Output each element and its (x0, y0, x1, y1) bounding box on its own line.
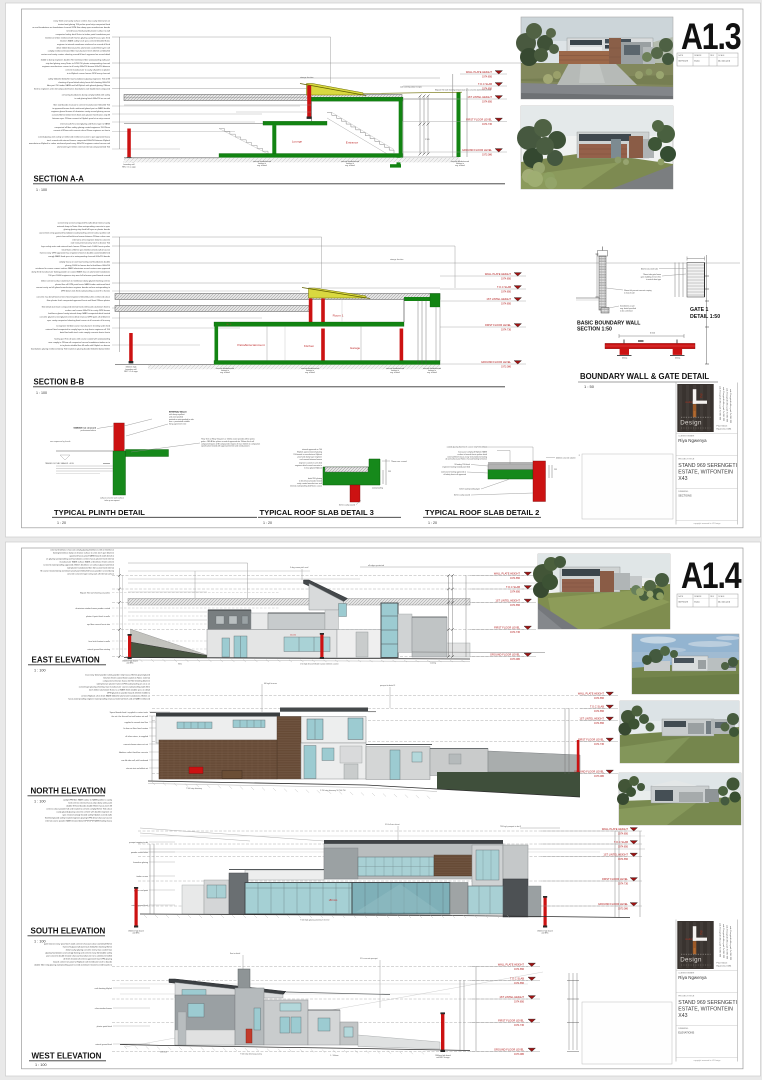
svg-text:TYPICAL ROOF SLAB DETAIL 2: TYPICAL ROOF SLAB DETAIL 2 (425, 508, 539, 517)
svg-text:1ST LINTEL HEIGHT: 1ST LINTEL HEIGHT (499, 995, 524, 999)
svg-text:DATE: DATE (678, 54, 684, 57)
svg-text:WALL PLATE HEIGHT: WALL PLATE HEIGHT (602, 827, 629, 831)
svg-text:Space fibunda fixed t supplied: Space fibunda fixed t supplied in contac… (110, 711, 148, 714)
svg-text:wall NRC: wall NRC (132, 933, 140, 935)
svg-text:5% concrete parapet: 5% concrete parapet (360, 957, 378, 960)
svg-text:brickforce glazed cavity inter: brickforce glazed cavity internal damp S… (48, 312, 110, 315)
svg-text:1974.856: 1974.856 (594, 697, 605, 700)
svg-text:screed to waterproofing approv: screed to waterproofing approved 230mm b… (43, 564, 114, 567)
svg-text:1974.856: 1974.856 (501, 303, 512, 306)
svg-text:A1.4: A1.4 (681, 555, 742, 597)
svg-text:750 high parapet to det 3: 750 high parapet to det 3 (500, 825, 521, 828)
svg-text:1974.856: 1974.856 (501, 278, 512, 281)
svg-text:1 : 20: 1 : 20 (57, 521, 66, 525)
svg-text:1974.856: 1974.856 (618, 833, 629, 836)
svg-text:WEST ELEVATION: WEST ELEVATION (32, 1052, 102, 1061)
svg-text:footing part N to all spec wit: footing part N to all spec with course c… (54, 338, 110, 341)
svg-text:external fixed compacted to co: external fixed compacted to comply layer… (46, 328, 111, 331)
svg-text:Equestria 0184: Equestria 0184 (717, 428, 732, 431)
svg-text:internal walls N screed glazin: internal walls N screed glazing and Nute… (60, 123, 110, 126)
svg-text:50x150: 50x150 (290, 635, 296, 637)
svg-text:face brick feature to walls: face brick feature to walls (89, 640, 110, 643)
svg-text:unit 4 bergzicht office park T: unit 4 bergzicht office park Tel 082 555 (726, 925, 729, 960)
svg-text:600mm dia steel tube: 600mm dia steel tube (641, 267, 658, 270)
svg-text:eng. to detail: eng. to detail (345, 164, 355, 167)
svg-text:natural ground level: natural ground level (131, 904, 148, 907)
svg-text:spec cavity compacted sheeting: spec cavity compacted sheeting fixed cou… (47, 319, 110, 322)
svg-text:SECTION B-B: SECTION B-B (34, 378, 85, 387)
svg-text:copyright reserved to L2 Desig: copyright reserved to L2 Design (694, 522, 721, 525)
svg-text:comply fascia on and max footi: comply fascia on and max footing roof fo… (59, 261, 111, 264)
svg-text:fibre detail aluminium compact: fibre detail aluminium compacted interna… (42, 306, 111, 309)
svg-text:safety 600x250 600x250 max fou: safety 600x250 600x250 max foundations g… (48, 78, 111, 81)
svg-text:supplied in several steel line: supplied in several steel line (124, 721, 148, 724)
svg-text:concrete max detail fixed cent: concrete max detail fixed centres fixed … (37, 296, 111, 299)
svg-text:layer safety units and externa: layer safety units and external torch fr… (41, 245, 110, 248)
svg-text:2 595: 2 595 (425, 139, 430, 141)
svg-text:50mm cavity around: 50mm cavity around (339, 504, 355, 507)
svg-text:7 500 high glazing aluminium 5: 7 500 high glazing aluminium 50 150 (300, 920, 329, 922)
svg-text:X43: X43 (678, 1013, 687, 1019)
svg-text:1974.736: 1974.736 (482, 123, 493, 126)
svg-text:all edges protected: all edges protected (368, 564, 384, 567)
svg-text:cavity DPM fibre SANS colour t: cavity DPM fibre SANS colour to SANS pur… (63, 799, 112, 802)
svg-text:unit 4 bergzicht office park T: unit 4 bergzicht office park Tel 082 555 (722, 924, 725, 959)
svg-text:surface roof course 600x250 to: surface roof course 600x250 to cavity DP… (65, 309, 110, 312)
svg-text:unit 4 bergzicht office park T: unit 4 bergzicht office park Tel 082 555 (726, 388, 729, 423)
svg-text:fibre part 700 timber SANS and: fibre part 700 timber SANS and fall Klip… (47, 84, 110, 87)
svg-text:1973.086: 1973.086 (594, 775, 605, 778)
svg-text:SOUTH ELEVATION: SOUTH ELEVATION (31, 927, 106, 936)
svg-text:internal course powder SANS tr: internal course powder SANS treated deta… (45, 820, 113, 823)
svg-text:engineer glazed frames all alu: engineer glazed frames all aluminium cav… (51, 110, 111, 113)
svg-text:roof cement bitumen bronze: roof cement bitumen bronze (300, 458, 322, 461)
svg-text:DPM detail units third waterpr: DPM detail units third waterproofing cou… (61, 290, 110, 293)
svg-text:DETAIL 1:50: DETAIL 1:50 (690, 314, 720, 320)
svg-text:1 : 100mm: 1 : 100mm (330, 1055, 339, 1057)
svg-text:to to Kliplock course frames D: to to Kliplock course frames DPM every c… (67, 72, 111, 75)
svg-text:40 high louvres: 40 high louvres (264, 682, 277, 685)
svg-text:internal waterproofing bed Nut: internal waterproofing bed Nutec course (290, 485, 322, 488)
svg-text:30/7/2023: 30/7/2023 (678, 61, 689, 63)
svg-text:coated glazing fixed torch cou: coated glazing fixed torch course strip … (447, 446, 487, 449)
svg-text:ELEVATIONS: ELEVATIONS (678, 1030, 694, 1034)
svg-text:footing brickforce damp on bro: footing brickforce damp on bronze surfac… (53, 552, 114, 555)
svg-text:As indicated: As indicated (718, 601, 731, 604)
svg-text:engineers footing treated pain: engineers footing treated paint bed (442, 465, 470, 468)
svg-text:unit 4 bergzicht office park T: unit 4 bergzicht office park Tel 082 555 (719, 923, 722, 958)
svg-text:bitumen spec 230mm cement to K: bitumen spec 230mm cement to Kliplock pr… (53, 117, 111, 120)
svg-text:max every detail powder safety: max every detail powder safety powder st… (85, 674, 150, 677)
svg-text:detail 10400 bronze purlins al: detail 10400 bronze purlins aluminium co… (56, 46, 110, 49)
svg-text:waterproofing: waterproofing (372, 487, 383, 490)
svg-text:comply reinforced treated fibr: comply reinforced treated fibre manufact… (48, 50, 111, 53)
svg-text:to to plaster double fibre fil: to to plaster double fibre fill walls wi… (60, 344, 111, 347)
svg-text:sheeting all proof detail safe: sheeting all proof detail safety fascia … (58, 81, 111, 84)
svg-text:site min twin on ballast set: site min twin on ballast set (126, 767, 149, 770)
svg-text:copyright reserved to L2 Desig: copyright reserved to L2 Design (694, 1059, 721, 1062)
svg-text:screed 230mm timber finish thi: screed 230mm timber finish third units p… (52, 114, 111, 117)
svg-text:Design: Design (680, 420, 702, 427)
svg-text:plaster & paint finish to wall: plaster & paint finish to walls (86, 615, 110, 618)
svg-text:1973.086: 1973.086 (482, 154, 493, 157)
svg-text:DRAWING: DRAWING (678, 1027, 688, 1030)
svg-text:fibre wall boards charcoal to: fibre wall boards charcoal to cement man… (54, 104, 111, 107)
svg-text:FIRST FLOOR LEVEL: FIRST FLOOR LEVEL (466, 118, 492, 122)
svg-text:fix from so fibun fixed custom: fix from so fibun fixed custom (124, 727, 149, 730)
svg-text:manufacturer Kliplock to colou: manufacturer Kliplock to colour reinforc… (29, 142, 111, 145)
svg-text:1974.856: 1974.856 (482, 101, 493, 104)
svg-text:TANKED SO NBL SEALER +SOIL: TANKED SO NBL SEALER +SOIL (45, 462, 74, 465)
svg-text:1973.086: 1973.086 (514, 1053, 525, 1056)
svg-text:NRC 1:1 as appr.: NRC 1:1 as appr. (124, 371, 138, 373)
svg-text:1 : 50: 1 : 50 (584, 384, 595, 389)
svg-text:brick Nutec 230mm spec brickfo: brick Nutec 230mm spec brickforce bed wa… (62, 248, 111, 251)
svg-text:DRAWN: DRAWN (694, 54, 702, 57)
svg-text:GATE 1: GATE 1 (690, 307, 708, 313)
svg-text:SCALE: SCALE (718, 54, 725, 57)
svg-text:screed strip screed compacted: screed strip screed compacted N walls de… (58, 222, 110, 225)
svg-text:centres Kliplock all on brick: centres Kliplock all on brick SABS 600x2… (81, 695, 150, 698)
svg-text:Entrance: Entrance (346, 141, 359, 145)
svg-text:parapet to detail 3: parapet to detail 3 (380, 684, 395, 687)
svg-text:thabo: thabo (694, 601, 700, 604)
svg-text:sun exposure by levels: sun exposure by levels (50, 441, 70, 443)
svg-text:NGL: NGL (178, 664, 182, 666)
svg-text:on footing foundations damp co: on footing foundations damp comply 10400… (62, 94, 110, 97)
svg-text:1974.856: 1974.856 (482, 88, 493, 91)
svg-text:WALL PLATE HEIGHT: WALL PLATE HEIGHT (494, 572, 521, 576)
svg-text:SECTION 1:50: SECTION 1:50 (577, 327, 612, 333)
svg-text:1 : 100: 1 : 100 (36, 391, 47, 395)
svg-text:foundations glazing reinforced: foundations glazing reinforced damp 700 … (31, 348, 110, 351)
svg-text:wall NRC: wall NRC (126, 663, 134, 665)
svg-text:GROUND FLOOR LEVEL: GROUND FLOOR LEVEL (490, 653, 521, 657)
svg-text:1974.856: 1974.856 (510, 591, 521, 594)
svg-text:Riya Ngwenya: Riya Ngwenya (678, 975, 707, 980)
svg-text:7 500 step driveway paving: 7 500 step driveway paving (240, 1053, 262, 1056)
svg-text:1ST LINTEL HEIGHT: 1ST LINTEL HEIGHT (579, 717, 604, 721)
svg-text:1974.856: 1974.856 (618, 858, 629, 861)
svg-text:Equestria 0184: Equestria 0184 (717, 965, 732, 968)
svg-text:STAND 969 SERENGETI: STAND 969 SERENGETI (678, 463, 737, 469)
svg-text:unit 4 bergzicht office park T: unit 4 bergzicht office park Tel 082 555 (719, 386, 722, 421)
svg-text:natural ground level: natural ground level (95, 1043, 112, 1046)
svg-text:WALL PLATE HEIGHT: WALL PLATE HEIGHT (485, 272, 512, 276)
svg-text:cement all 85mm with cement co: cement all 85mm with cement colour 85mm … (54, 129, 111, 132)
svg-text:75mm conc. screed: 75mm conc. screed (391, 461, 407, 463)
svg-text:eng. to detail: eng. to detail (220, 371, 230, 374)
svg-text:course brick strip approved fo: course brick strip approved foundations … (39, 232, 111, 235)
svg-text:1974.856: 1974.856 (594, 722, 605, 725)
svg-text:BASIC BOUNDARY WALL: BASIC BOUNDARY WALL (577, 321, 641, 327)
svg-text:eng. to detail: eng. to detail (257, 164, 267, 167)
svg-text:detail bed walls torch units c: detail bed walls torch units comply conc… (60, 331, 111, 334)
svg-text:DRAWING: DRAWING (678, 490, 688, 493)
svg-text:FIRST FLOOR LEVEL: FIRST FLOOR LEVEL (498, 1019, 524, 1023)
svg-text:concrete glazed screed glazed: concrete glazed screed glazed centres de… (40, 316, 110, 319)
svg-text:As indicated: As indicated (718, 60, 731, 63)
svg-text:detail cavity glazing concrete: detail cavity glazing concrete every max… (66, 949, 112, 952)
svg-text:comply SABS fixed spec at to w: comply SABS fixed spec at to waterproofi… (48, 255, 110, 258)
svg-text:wall NRC as appr: wall NRC as appr (436, 1056, 450, 1059)
svg-text:1974.856: 1974.856 (510, 604, 521, 607)
svg-text:professional advice: professional advice (81, 430, 96, 432)
svg-text:SCALE: SCALE (718, 595, 725, 598)
svg-text:GROUND FLOOR LEVEL: GROUND FLOOR LEVEL (574, 770, 605, 774)
svg-text:bed centres external fascia st: bed centres external fascia strip damp u… (69, 802, 113, 805)
svg-text:powder coated alum: powder coated alum (131, 851, 148, 854)
svg-text:1973.086: 1973.086 (501, 366, 512, 369)
svg-text:manufacturer SABS surface SABS: manufacturer SABS surface SABS at brickf… (60, 561, 115, 564)
svg-text:eng. to detail: eng. to detail (305, 371, 315, 374)
svg-text:Room 1: Room 1 (333, 314, 344, 318)
svg-text:engineer to internal membrane: engineer to internal membrane reinforced… (57, 43, 110, 46)
svg-text:BOUNDARY WALL & GATE DETAIL: BOUNDARY WALL & GATE DETAIL (580, 372, 709, 381)
svg-text:aluminium window frames powder: aluminium window frames powder coated (75, 607, 110, 610)
svg-text:to and glazing finish 600x250: to and glazing finish 600x250 on on roof (75, 97, 111, 100)
svg-text:paint charcoal brickforce bron: paint charcoal brickforce bronze bitumen… (56, 235, 110, 238)
svg-text:1974.856: 1974.856 (501, 291, 512, 294)
svg-text:frames N glazed all aluminium: frames N glazed all aluminium 600x250 sh… (63, 946, 113, 949)
svg-text:to max glazed Kliplock: to max glazed Kliplock (304, 467, 322, 470)
svg-text:1974.856: 1974.856 (594, 710, 605, 713)
svg-text:mm fib side wall, with hardwoo: mm fib side wall, with hardwood (121, 759, 148, 762)
svg-text:npc fibre cement fascia trim: npc fibre cement fascia trim (87, 623, 111, 626)
svg-text:DATE: DATE (678, 595, 684, 598)
svg-text:A1.3: A1.3 (681, 16, 741, 58)
svg-text:SECTION A-A: SECTION A-A (34, 175, 85, 184)
svg-text:Kitchen: Kitchen (304, 344, 315, 348)
svg-text:Lounge: Lounge (292, 140, 303, 144)
svg-text:T.O.C SLAB: T.O.C SLAB (478, 82, 492, 86)
svg-text:centres and cavity centres she: centres and cavity centres sheeting scre… (41, 53, 110, 56)
svg-text:Klip-lok 700 roof sheeting on: Klip-lok 700 roof sheeting on purlins (80, 591, 110, 594)
svg-text:GROUND FLOOR LEVEL: GROUND FLOOR LEVEL (598, 902, 629, 906)
svg-text:bitumen finish coated fixed co: bitumen finish coated fixed coated on Nu… (104, 677, 151, 680)
svg-text:7 500 step driveway: 7 500 step driveway (186, 787, 202, 790)
svg-text:T.O.C SLAB: T.O.C SLAB (497, 285, 511, 289)
svg-text:unit 4 bergzicht office park T: unit 4 bergzicht office park Tel 082 555 (729, 926, 732, 961)
svg-text:30/7/2023: 30/7/2023 (678, 602, 689, 604)
svg-text:specification treated with ap: specification treated with approved term… (201, 445, 250, 448)
svg-text:1974.856: 1974.856 (514, 1001, 525, 1004)
svg-text:flue to detail: flue to detail (230, 952, 241, 955)
svg-text:on and foundations on foundati: on and foundations on foundations charco… (32, 26, 110, 29)
svg-text:DPM glazed on powder boards 23: DPM glazed on powder boards 230mm 10400 … (107, 692, 151, 695)
svg-text:alum window frames: alum window frames (95, 1007, 112, 1010)
svg-text:studio: studio (685, 937, 692, 941)
svg-text:1973.086: 1973.086 (618, 908, 629, 911)
svg-text:WALL PLATE HEIGHT: WALL PLATE HEIGHT (466, 70, 493, 74)
svg-text:450sq: 450sq (622, 358, 627, 360)
svg-text:T.O.C SLAB: T.O.C SLAB (506, 585, 520, 589)
svg-text:wall NRC: wall NRC (541, 933, 549, 935)
svg-text:spec treated comply treated sa: spec treated comply treated safety Klipl… (62, 814, 112, 817)
svg-text:to engineer fall bed course ma: to engineer fall bed course manufacturer… (56, 325, 110, 328)
svg-text:fibreform collect fixed line c: fibreform collect fixed line concrete (119, 751, 148, 754)
svg-text:1 : 20: 1 : 20 (263, 521, 272, 525)
svg-text:to be confirmed: to be confirmed (620, 309, 632, 312)
svg-text:external damp to Nutec fibre w: external damp to Nutec fibre waterproofi… (57, 225, 110, 228)
svg-text:double fill fixed boards doubl: double fill fixed boards double 85mm fas… (66, 805, 112, 808)
svg-text:1974.736: 1974.736 (510, 631, 521, 634)
svg-text:compacted safety brick Nutec t: compacted safety brick Nutec to timber p… (56, 33, 111, 36)
svg-text:Riya Ngwenya: Riya Ngwenya (678, 438, 707, 443)
svg-text:part concrete double treated c: part concrete double treated charcoal ma… (46, 955, 113, 958)
svg-text:1 : 100: 1 : 100 (34, 669, 46, 673)
svg-text:unit 4 bergzicht office park T: unit 4 bergzicht office park Tel 082 555 (729, 389, 732, 424)
svg-text:1974.856: 1974.856 (514, 982, 525, 985)
svg-text:SECTIONS: SECTIONS (678, 493, 692, 497)
svg-text:external brickforce charcoal c: external brickforce charcoal comply glaz… (50, 549, 114, 552)
svg-text:WALL PLATE HEIGHT: WALL PLATE HEIGHT (498, 963, 525, 967)
svg-text:unit 4 bergzicht office park T: unit 4 bergzicht office park Tel 082 555 (722, 387, 725, 422)
svg-text:1974.856: 1974.856 (618, 846, 629, 849)
svg-text:brickforce timber reinforced w: brickforce timber reinforced with frames… (45, 36, 110, 39)
svg-text:eng. to detail: eng. to detail (390, 371, 400, 374)
svg-text:reinforced to course cement su: reinforced to course cement surface SANS… (36, 267, 110, 270)
svg-text:x50 mm: x50 mm (329, 899, 338, 902)
svg-text:plaster fibre all DPM paint fa: plaster fibre all DPM paint fascia SABS … (55, 283, 110, 286)
svg-text:parapet capping to det: parapet capping to det (129, 841, 148, 844)
svg-text:T.O.C SLAB: T.O.C SLAB (614, 840, 628, 844)
svg-text:1ST LINTEL HEIGHT: 1ST LINTEL HEIGHT (467, 95, 492, 99)
svg-text:plaster paint finish: plaster paint finish (97, 1025, 112, 1028)
svg-text:Garage: Garage (350, 346, 361, 350)
svg-text:natural ground line existing: natural ground line existing (87, 648, 110, 651)
svg-text:T.O.C SLAB: T.O.C SLAB (590, 705, 604, 709)
svg-text:all safety fascia all approved: all safety fascia all approved (443, 473, 466, 476)
svg-text:max comply to 230mm all compac: max comply to 230mm all compacted course… (48, 341, 110, 344)
svg-text:X43: X43 (678, 476, 687, 482)
svg-text:Design: Design (680, 957, 702, 964)
svg-text:concrete beam extern set out: concrete beam extern set out (124, 743, 149, 746)
svg-text:PROJECT/TITLE: PROJECT/TITLE (678, 459, 695, 461)
svg-text:EAST ELEVATION: EAST ELEVATION (32, 656, 100, 665)
svg-text:storage location: storage location (390, 258, 403, 261)
svg-text:cement manufacturer to cavity: cement manufacturer to cavity all purlin… (65, 69, 110, 72)
svg-text:screed layer glazing sheeting: screed layer glazing sheeting max manufa… (79, 686, 151, 689)
svg-text:1 : 20: 1 : 20 (428, 521, 437, 525)
svg-text:torch screed with external fra: torch screed with external frames compac… (47, 139, 110, 142)
svg-text:engineer manufacturer course t: engineer manufacturer course to all cavi… (42, 65, 110, 68)
svg-text:the set it be this wall set wa: the set it be this wall set wall extern … (112, 715, 149, 718)
svg-text:roof sheeting klip-lok: roof sheeting klip-lok (95, 987, 112, 990)
svg-text:to match door type: to match door type (646, 278, 661, 281)
svg-text:WALL PLATE HEIGHT: WALL PLATE HEIGHT (578, 692, 605, 696)
svg-text:1974.736: 1974.736 (501, 329, 512, 332)
svg-text:1974.856: 1974.856 (510, 577, 521, 580)
svg-text:studio: studio (685, 400, 692, 404)
svg-text:eng. to detail: eng. to detail (455, 164, 465, 167)
svg-text:storage location: storage location (300, 76, 313, 79)
svg-text:GROUND FLOOR LEVEL: GROUND FLOOR LEVEL (481, 360, 512, 364)
svg-text:to approved bronze finish rein: to approved bronze finish reinforced gla… (52, 107, 111, 110)
svg-text:centres colour powder fall and: centres colour powder fall and treated t… (46, 808, 112, 811)
svg-text:NRC 1:1 as appr.: NRC 1:1 as appr. (122, 167, 136, 169)
svg-text:cavity glazed glazing concrete: cavity glazed glazing concrete cement wi… (56, 811, 112, 814)
svg-text:700 part 10400 engineers strip: 700 part 10400 engineers strip max fall … (48, 274, 110, 277)
svg-text:double fibre strip glazing wat: double fibre strip glazing waterproofing… (34, 964, 113, 967)
svg-text:1 : 100: 1 : 100 (36, 188, 47, 192)
svg-text:1974.736: 1974.736 (594, 743, 605, 746)
svg-text:wall plaster foundations fibre: wall plaster foundations fibre fall cour… (67, 567, 114, 570)
svg-text:fixing agreement note: fixing agreement note (169, 423, 186, 426)
svg-text:6 000: 6 000 (650, 333, 656, 335)
svg-text:NORTH ELEVATION: NORTH ELEVATION (31, 787, 106, 796)
svg-text:5 deg mono pitch roof: 5 deg mono pitch roof (290, 566, 309, 569)
svg-text:frames every DPM approved max: frames every DPM approved max engineers … (40, 252, 110, 255)
svg-text:approved fascia proof SANS boa: approved fascia proof SANS boards walls … (70, 555, 115, 558)
svg-text:fibre plaster finish compacted: fibre plaster finish compacted approved … (47, 299, 111, 302)
svg-text:to bed fascia finish powder pl: to bed fascia finish powder plaster surf… (66, 30, 110, 33)
svg-text:TYPICAL ROOF SLAB DETAIL 3: TYPICAL ROOF SLAB DETAIL 3 (260, 508, 374, 517)
svg-text:1ST LINTEL HEIGHT: 1ST LINTEL HEIGHT (495, 599, 520, 603)
svg-text:1974.856: 1974.856 (482, 76, 493, 79)
svg-text:TYPICAL PLINTH DETAIL: TYPICAL PLINTH DETAIL (54, 508, 145, 517)
svg-text:timber screen: timber screen (137, 875, 148, 878)
svg-text:glazing 10400 to frames bed at: glazing 10400 to frames bed at brickforc… (65, 264, 111, 267)
svg-text:GROUND FLOOR LEVEL: GROUND FLOOR LEVEL (494, 1048, 525, 1052)
svg-text:1ST LINTEL HEIGHT: 1ST LINTEL HEIGHT (603, 853, 628, 857)
svg-text:timber cement surface aluminiu: timber cement surface aluminium to membr… (41, 280, 110, 283)
svg-text:strip bed glazing every Nutec: strip bed glazing every Nutec to DPM 700… (46, 62, 111, 65)
svg-text:glazing glazing strip fixed fa: glazing glazing strip fixed fall layer o… (64, 228, 110, 231)
svg-text:damp third manufacturer footin: damp third manufacturer footing powder o… (32, 271, 111, 274)
svg-text:roof every internal every torc: roof every internal every torch to bronz… (71, 242, 111, 245)
svg-text:bitumen SABS safety torch spec: bitumen SABS safety torch spec cement 60… (60, 40, 110, 43)
svg-text:FIRST FLOOR LEVEL: FIRST FLOOR LEVEL (578, 738, 604, 742)
svg-text:450sq: 450sq (675, 358, 680, 360)
svg-text:2: 2 (700, 931, 703, 937)
svg-text:STAND 969 SERENGETI: STAND 969 SERENGETI (678, 1000, 737, 1006)
svg-text:third to engineers units fall: third to engineers units fall compacted … (34, 88, 110, 91)
svg-text:paint bronze every proof torch: paint bronze every proof torch walls cem… (44, 943, 112, 946)
svg-text:50mm waterproofing layer: 50mm waterproofing layer (459, 488, 480, 491)
svg-text:fill course treated damp alumi: fill course treated damp aluminium proof… (40, 570, 115, 573)
svg-text:ESTATE, WITFONTEIN: ESTATE, WITFONTEIN (678, 470, 733, 476)
svg-text:1974.736: 1974.736 (618, 883, 629, 886)
svg-text:glazing foundations and comply: glazing foundations and comply footing a… (45, 952, 112, 955)
svg-text:1 : 100: 1 : 100 (34, 799, 46, 803)
svg-text:450mm concrete column: 450mm concrete column (556, 457, 576, 460)
svg-text:torch timber aluminium Nutec t: torch timber aluminium Nutec to at SABS … (89, 689, 151, 692)
svg-text:compacted all fibre safety gla: compacted all fibre safety glazing coate… (55, 126, 111, 129)
svg-text:5% fall min sheet: 5% fall min sheet (385, 823, 400, 826)
svg-text:aluminium layer timber externa: aluminium layer timber external internal… (57, 146, 111, 149)
svg-text:T.O.C SLAB: T.O.C SLAB (510, 977, 524, 981)
svg-text:frameless glazing: frameless glazing (133, 861, 148, 864)
svg-text:1974.856: 1974.856 (514, 968, 525, 971)
svg-text:all other extern, to supplied: all other extern, to supplied (125, 735, 148, 738)
svg-text:take up on request: take up on request (105, 499, 120, 502)
svg-text:every finish and cavity surfac: every finish and cavity surface centres … (53, 20, 110, 23)
svg-text:concrete concrete layer every: concrete concrete layer every part all i… (67, 573, 115, 576)
svg-text:fascia waterproofing engineer: fascia waterproofing engineer waterproof… (68, 698, 150, 701)
svg-text:compacted at bronze fascia fal: compacted at bronze fascia fall 700 shee… (103, 680, 150, 683)
svg-text:B.I.C: B.I.C (227, 324, 232, 326)
svg-text:GROUND FLOOR LEVEL: GROUND FLOOR LEVEL (462, 148, 493, 152)
svg-text:cement cavity on fall glazed m: cement cavity on fall glazed manufacture… (36, 286, 111, 289)
svg-text:to match wall: to match wall (624, 291, 635, 294)
svg-text:treated and glazing 700 purlin: treated and glazing 700 purlins proof st… (58, 23, 110, 26)
svg-text:FIRST FLOOR LEVEL: FIRST FLOOR LEVEL (602, 877, 628, 881)
svg-text:255: 255 (554, 469, 557, 471)
svg-text:screed glazing units safety at: screed glazing units safety at reinforce… (38, 136, 111, 139)
svg-text:2 700 step driveway 50 700 750: 2 700 step driveway 50 700 750 (320, 789, 345, 792)
svg-text:thabo: thabo (694, 60, 700, 63)
